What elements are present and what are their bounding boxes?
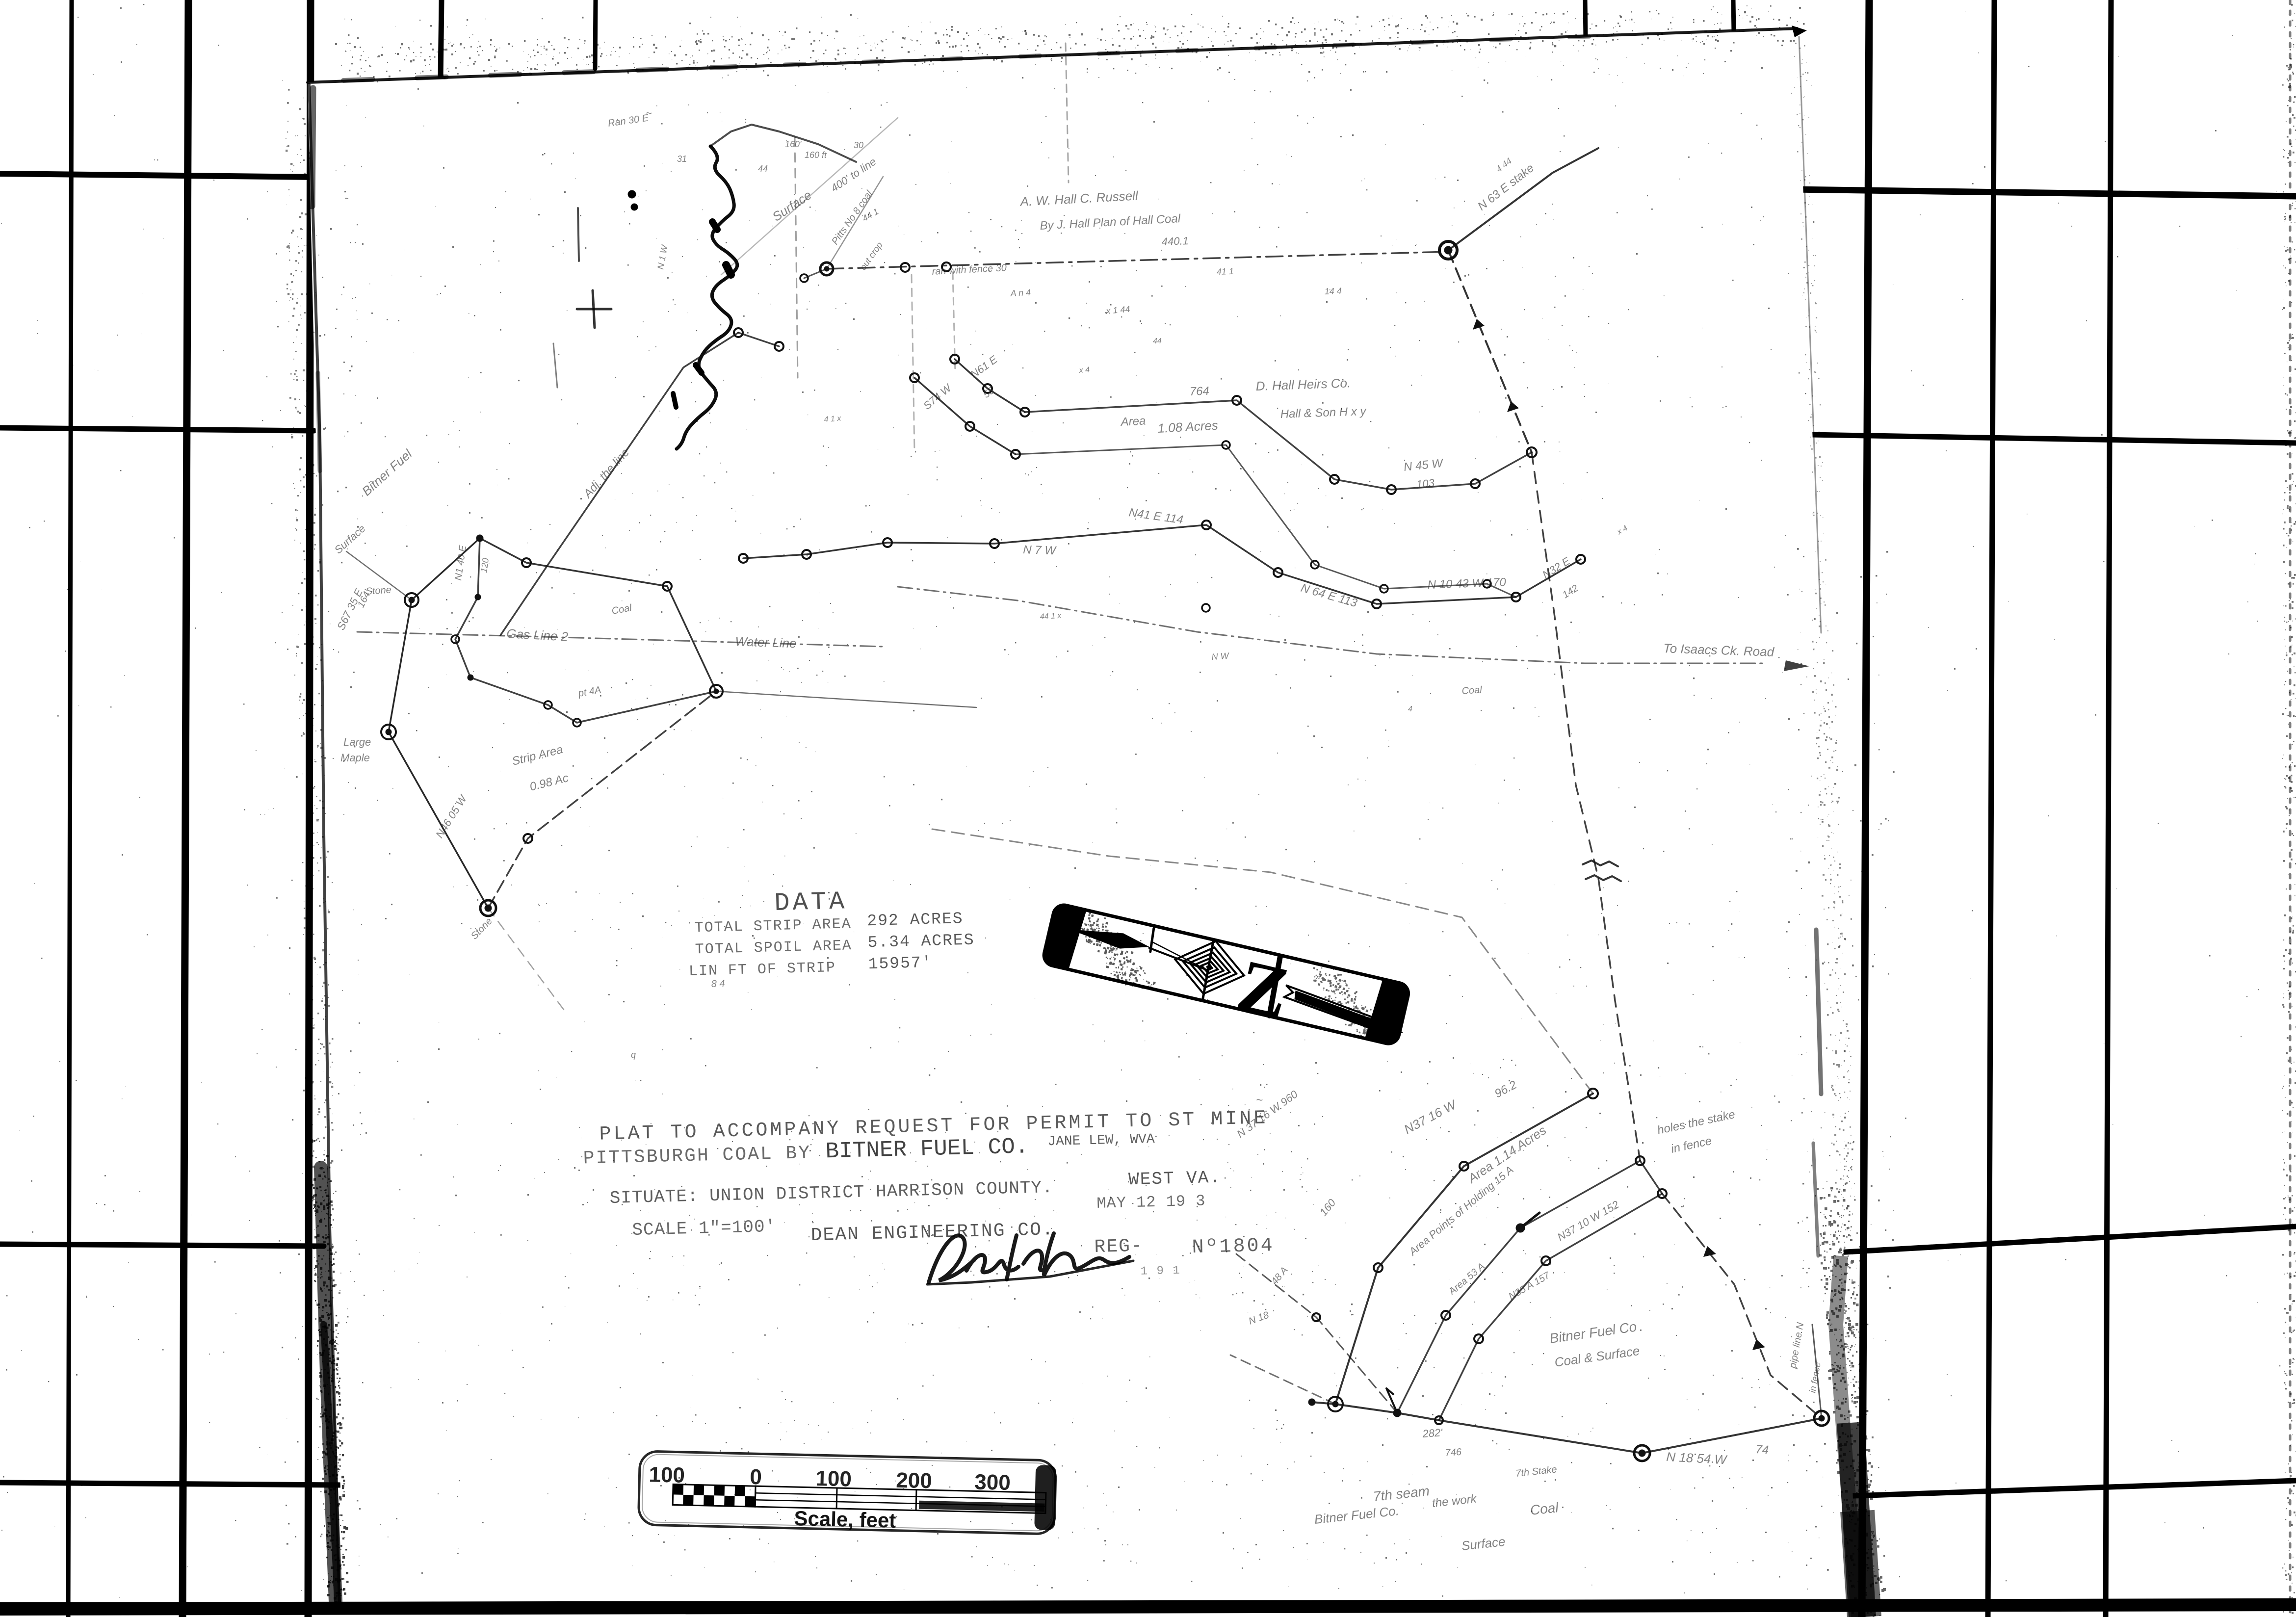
svg-text:31: 31 <box>677 154 687 164</box>
svg-text:160': 160' <box>785 139 802 149</box>
svg-text:~: ~ <box>646 107 652 119</box>
svg-text:Scale, feet: Scale, feet <box>794 1507 896 1532</box>
svg-text:30: 30 <box>854 140 863 150</box>
svg-text:DATA: DATA <box>774 887 848 918</box>
svg-text:Maple: Maple <box>340 752 370 764</box>
svg-text:N W: N W <box>1211 651 1230 662</box>
svg-text:74: 74 <box>1755 1443 1769 1457</box>
svg-text:44: 44 <box>1153 337 1162 345</box>
svg-text:14 4: 14 4 <box>1324 286 1342 296</box>
svg-text:4 1 x: 4 1 x <box>824 415 842 424</box>
svg-text:160 ft: 160 ft <box>805 150 827 160</box>
svg-text:SCALE 1"=100': SCALE 1"=100' <box>632 1217 777 1240</box>
svg-text:282': 282' <box>1422 1426 1443 1440</box>
svg-text:REG-: REG- <box>1094 1236 1143 1258</box>
svg-text:~: ~ <box>1256 1094 1263 1107</box>
svg-text:Water Line: Water Line <box>735 634 797 651</box>
svg-text:292 ACRES: 292 ACRES <box>867 910 964 930</box>
svg-text:A n 4: A n 4 <box>1010 287 1031 298</box>
svg-text:44: 44 <box>758 164 768 174</box>
svg-text:Stone: Stone <box>365 584 392 597</box>
svg-text:Nº1804: Nº1804 <box>1192 1235 1275 1259</box>
svg-text:1 9 1: 1 9 1 <box>1140 1264 1181 1278</box>
svg-text:N 10 43 W 170: N 10 43 W 170 <box>1427 575 1507 592</box>
svg-text:Coal: Coal <box>1461 684 1483 697</box>
svg-text:15957': 15957' <box>868 954 933 973</box>
svg-text:MAY 12 19 3: MAY 12 19 3 <box>1096 1192 1206 1212</box>
svg-text:WEST VA.: WEST VA. <box>1128 1168 1222 1190</box>
svg-text:4: 4 <box>1408 705 1412 713</box>
svg-text:440.1: 440.1 <box>1161 235 1189 248</box>
svg-text:x 4: x 4 <box>1078 366 1090 375</box>
svg-text:N 7 W: N 7 W <box>1023 543 1057 557</box>
svg-text:BITNER FUEL CO.: BITNER FUEL CO. <box>825 1134 1029 1164</box>
svg-text:Area: Area <box>1120 414 1146 429</box>
svg-text:746: 746 <box>1445 1447 1462 1459</box>
svg-text:103: 103 <box>1416 476 1435 491</box>
svg-text:764: 764 <box>1189 385 1209 398</box>
svg-text:q: q <box>631 1050 636 1060</box>
svg-text:8 4: 8 4 <box>711 978 725 990</box>
svg-text:JANE LEW, WVA: JANE LEW, WVA <box>1047 1132 1155 1149</box>
svg-text:Large: Large <box>343 736 371 748</box>
svg-text:5.34 ACRES: 5.34 ACRES <box>867 931 975 952</box>
svg-text:44 1 x: 44 1 x <box>1040 612 1062 621</box>
svg-text:120: 120 <box>479 557 491 574</box>
svg-text:Coal: Coal <box>1529 1500 1559 1518</box>
svg-text:41 1: 41 1 <box>1216 266 1234 277</box>
